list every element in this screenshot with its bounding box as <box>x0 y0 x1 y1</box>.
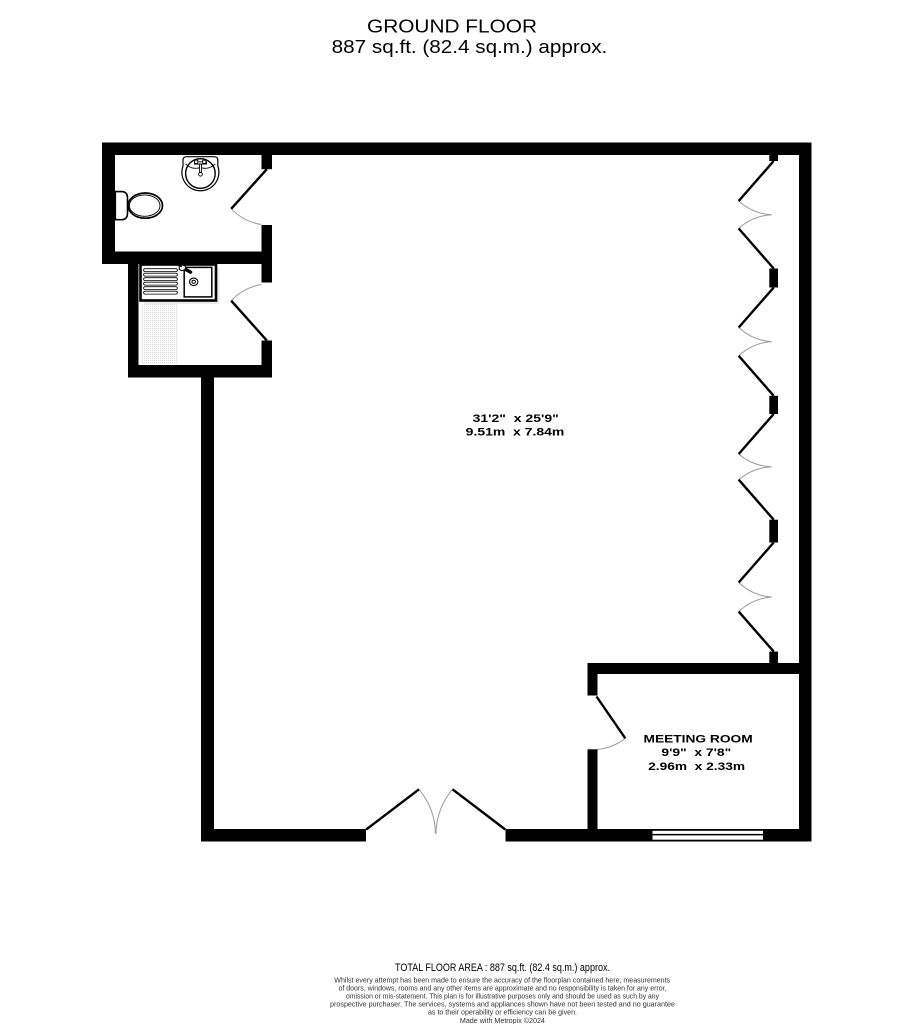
svg-text:31'2" x 25'9": 31'2" x 25'9" <box>473 413 559 425</box>
svg-text:887 sq.ft. (82.4 sq.m.) approx: 887 sq.ft. (82.4 sq.m.) approx. <box>332 37 608 57</box>
svg-text:9.51m x 7.84m: 9.51m x 7.84m <box>466 426 565 438</box>
svg-text:TOTAL FLOOR AREA : 887 sq.ft.: TOTAL FLOOR AREA : 887 sq.ft. (82.4 sq.m… <box>395 962 610 974</box>
svg-text:MEETING ROOM: MEETING ROOM <box>644 733 753 745</box>
svg-text:9'9" x 7'8": 9'9" x 7'8" <box>661 747 731 759</box>
svg-text:Made with Metropix ©2024: Made with Metropix ©2024 <box>460 1016 545 1024</box>
svg-text:GROUND FLOOR: GROUND FLOOR <box>367 17 537 37</box>
svg-text:2.96m x 2.33m: 2.96m x 2.33m <box>648 761 745 773</box>
